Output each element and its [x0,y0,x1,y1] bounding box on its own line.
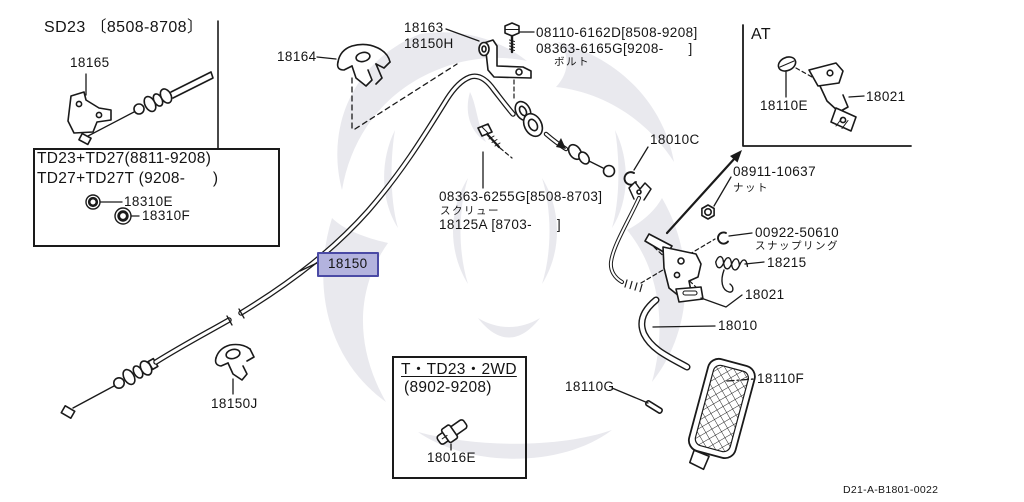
cable-grommet-18125A-drawing [512,99,614,177]
part-label-18150J[interactable]: 18150J [211,397,258,411]
part-label-bolt-pn1[interactable]: 08110-6162D[8508-9208] [536,26,698,40]
t-td23-box-line2: (8902-9208) [404,380,492,396]
part-label-18010C[interactable]: 18010C [650,133,700,147]
annotation-snap-ring: スナップリング [755,241,839,252]
part-label-18010[interactable]: 18010 [718,319,758,333]
at-variant-arrow [667,150,742,233]
part-label-18150H[interactable]: 18150H [404,37,454,51]
part-label-screw-pn[interactable]: 08363-6255G[8508-8703] [439,190,602,204]
diagram-code: D21-A-B1801-0022 [843,485,938,496]
part-label-18110G[interactable]: 18110G [565,380,614,394]
at-linkage-drawing [776,54,864,131]
snap-ring-drawing [718,232,752,243]
part-label-18150[interactable]: 18150 [317,252,379,277]
part-label-18021-at[interactable]: 18021 [866,90,906,104]
part-label-18215[interactable]: 18215 [767,256,807,270]
part-label-18016E[interactable]: 18016E [427,451,476,465]
at-box-title: AT [751,27,771,44]
part-label-snap-pn[interactable]: 00922-50610 [755,226,839,240]
part-label-18164[interactable]: 18164 [277,50,317,64]
sd23-cable-drawing [68,72,213,144]
eclip-18010C-drawing [625,147,648,185]
annotation-bolt: ボルト [554,57,590,68]
part-label-18110E[interactable]: 18110E [760,99,808,113]
pedal-pad-18110F-drawing [682,356,757,476]
td23-box-line1: TD23+TD27(8811-9208) [37,151,211,167]
part-label-18125A[interactable]: 18125A [8703- ] [439,218,561,232]
part-label-18110F[interactable]: 18110F [757,372,804,386]
part-label-18310F[interactable]: 18310F [142,209,190,223]
t-td23-box-line1: T・TD23・2WD [401,362,517,378]
screw-6255G-drawing [478,124,512,188]
clip-18150J-drawing [216,345,254,395]
pin-18110G-drawing [612,388,663,414]
part-label-nut-pn[interactable]: 08911-10637 [733,165,816,179]
nut-drawing [702,177,731,219]
annotation-nut: ナット [733,183,769,194]
part-label-bolt-pn2[interactable]: 08363-6165G[9208- ] [536,42,693,56]
part-label-18163[interactable]: 18163 [404,21,444,35]
part-label-18021[interactable]: 18021 [745,288,785,302]
td23-box-line2: TD27+TD27T (9208- ) [37,171,218,187]
parts-diagram-canvas: SD23 〔8508-8708〕 18165 TD23+TD27(8811-92… [0,0,1024,502]
annotation-screw: スクリュー [440,206,500,217]
sd23-box-title: SD23 〔8508-8708〕 [44,20,203,37]
part-label-18165[interactable]: 18165 [70,56,110,70]
